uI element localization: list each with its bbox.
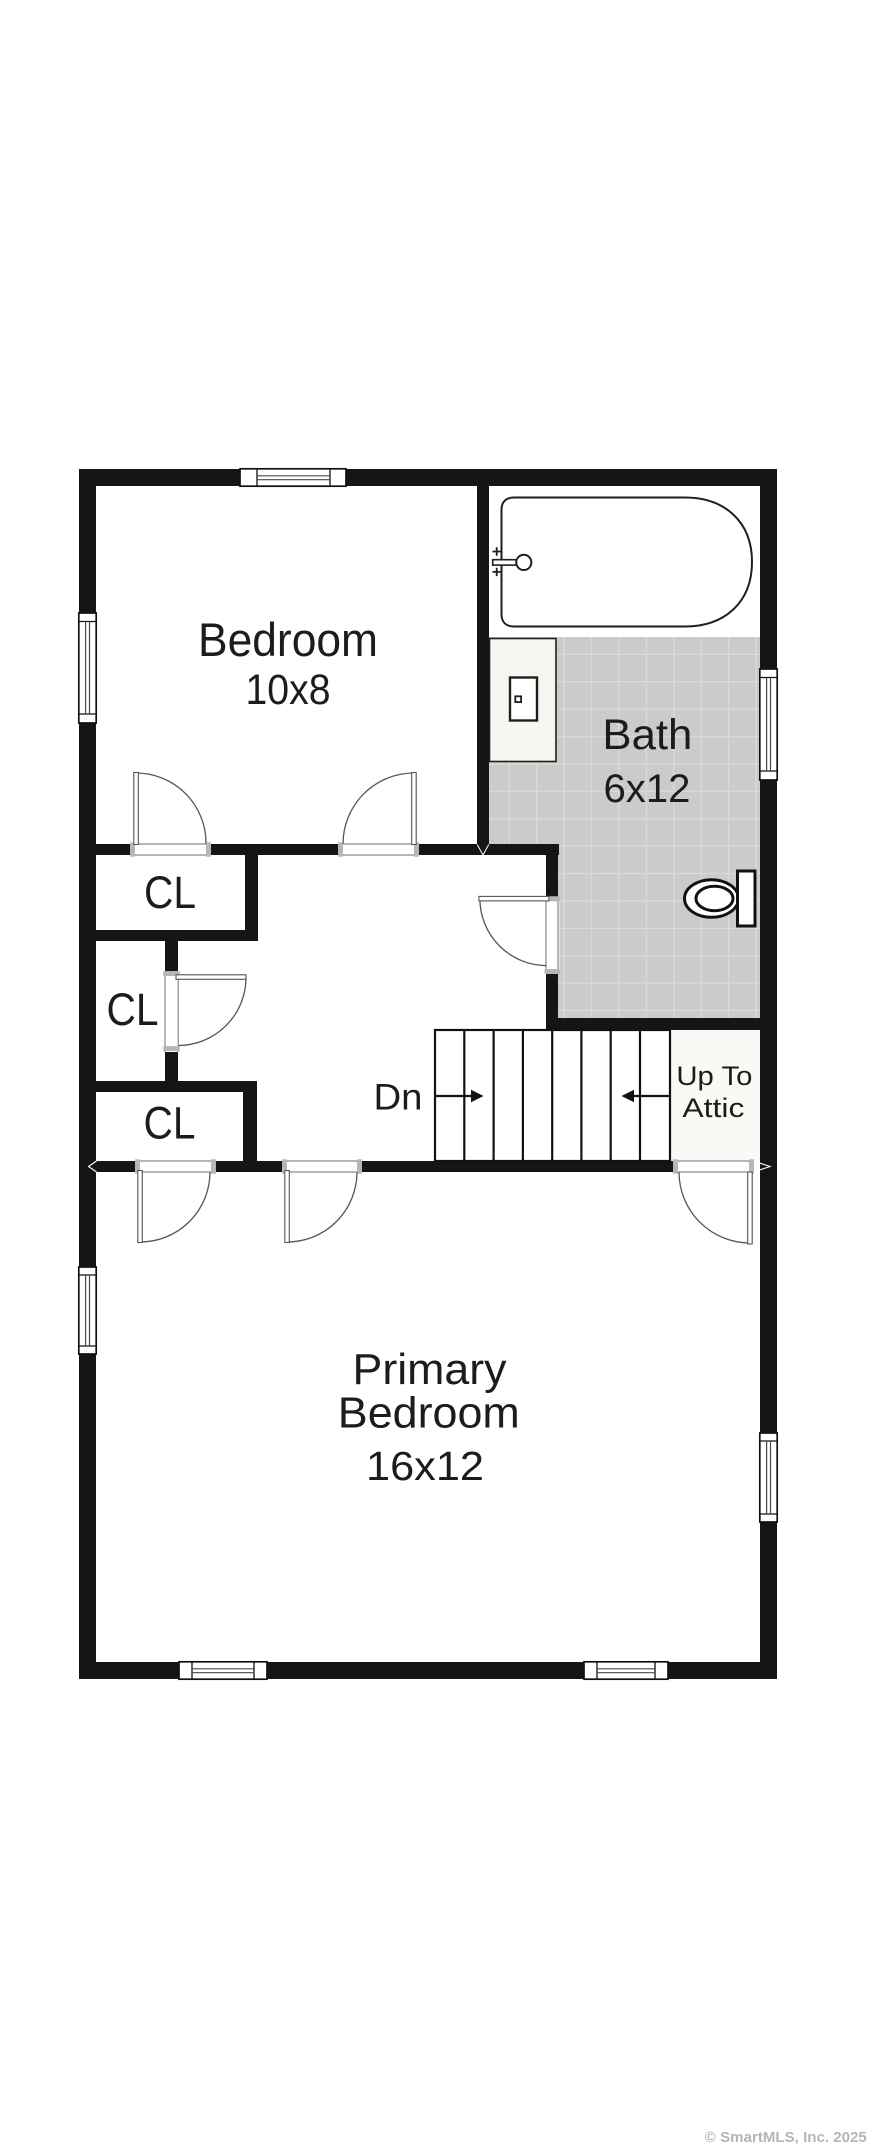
svg-text:10x8: 10x8 [246,667,331,714]
svg-text:Bath: Bath [602,711,692,759]
svg-text:Attic: Attic [682,1093,744,1123]
svg-text:Dn: Dn [374,1076,423,1118]
svg-text:CL: CL [107,984,159,1035]
svg-text:Bedroom: Bedroom [198,614,378,667]
svg-text:Up To: Up To [676,1061,752,1091]
svg-text:16x12: 16x12 [366,1443,484,1489]
svg-text:© SmartMLS, Inc. 2025: © SmartMLS, Inc. 2025 [705,2130,867,2146]
svg-text:Primary: Primary [353,1346,507,1394]
svg-text:CL: CL [144,867,196,918]
svg-text:Bedroom: Bedroom [338,1390,520,1438]
svg-text:CL: CL [144,1098,196,1149]
svg-text:6x12: 6x12 [604,767,691,811]
